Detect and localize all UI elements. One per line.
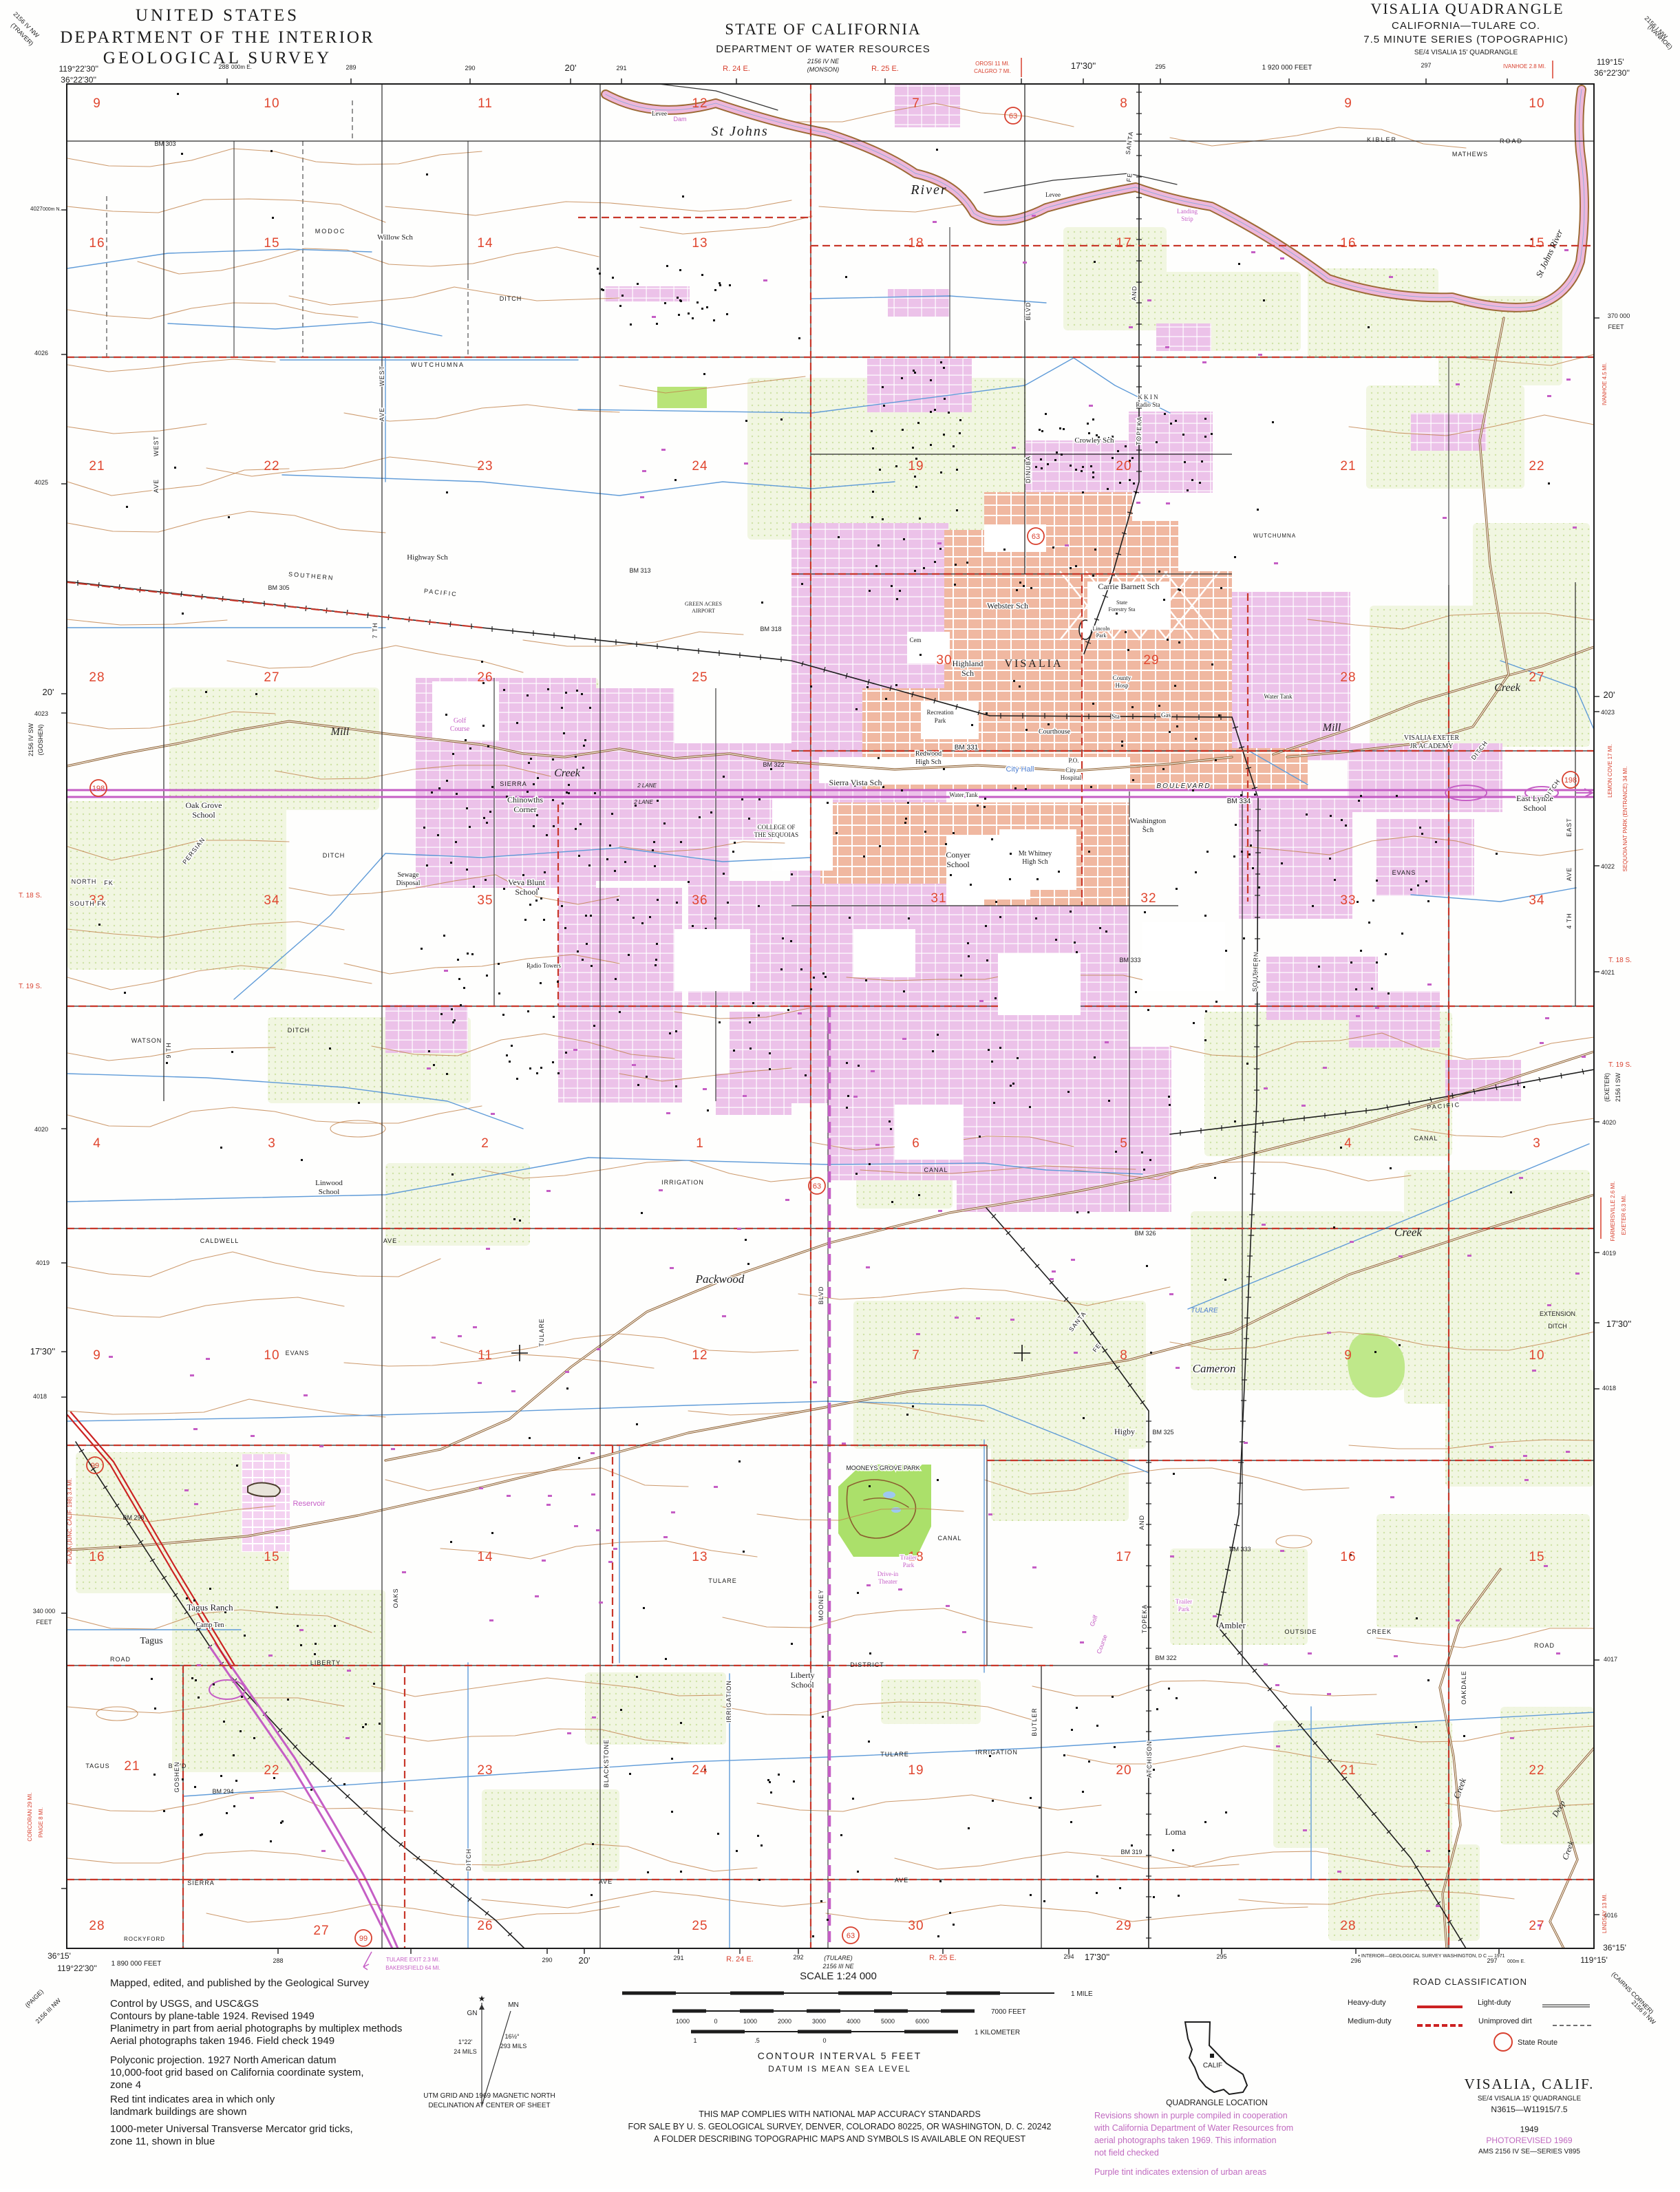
svg-text:Course: Course [450, 725, 470, 733]
svg-text:10: 10 [1529, 96, 1544, 111]
svg-text:BOULEVARD: BOULEVARD [1156, 783, 1211, 790]
svg-text:4019: 4019 [1602, 1250, 1616, 1257]
svg-text:THIS MAP COMPLIES WITH NATIONA: THIS MAP COMPLIES WITH NATIONAL MAP ACCU… [699, 2109, 981, 2119]
svg-text:BM 334: BM 334 [1227, 798, 1251, 805]
svg-text:7 TH: 7 TH [372, 622, 379, 638]
svg-text:AVE: AVE [1566, 867, 1573, 881]
svg-text:6000: 6000 [915, 2018, 929, 2025]
svg-text:DITCH: DITCH [323, 852, 345, 859]
svg-text:GREEN ACRES: GREEN ACRES [685, 601, 722, 607]
svg-text:Park: Park [1096, 632, 1107, 639]
svg-text:FEET: FEET [1608, 323, 1624, 330]
svg-text:Park: Park [935, 717, 946, 724]
svg-text:MOONEY: MOONEY [818, 1589, 825, 1621]
svg-text:19: 19 [908, 1763, 924, 1778]
svg-text:119°15': 119°15' [1597, 57, 1624, 67]
svg-text:Aerial photographs taken 1946.: Aerial photographs taken 1946. Field che… [110, 2035, 334, 2047]
svg-text:9 TH: 9 TH [165, 1042, 172, 1058]
svg-text:26: 26 [477, 670, 493, 685]
svg-text:Mapped, edited, and published: Mapped, edited, and published by the Geo… [110, 1977, 370, 1989]
svg-text:BM 319: BM 319 [1120, 1849, 1142, 1855]
svg-text:7.5 MINUTE SERIES (TOPOGRAPHIC: 7.5 MINUTE SERIES (TOPOGRAPHIC) [1363, 34, 1568, 45]
svg-text:36°15': 36°15' [1603, 1943, 1626, 1952]
svg-text:11: 11 [478, 96, 493, 111]
svg-text:63: 63 [1009, 112, 1017, 120]
svg-text:zone 11, shown in blue: zone 11, shown in blue [110, 2136, 215, 2147]
svg-text:293 MILS: 293 MILS [500, 2043, 527, 2050]
svg-text:(GOSHEN): (GOSHEN) [37, 724, 44, 755]
svg-text:St Johns: St Johns [711, 124, 768, 139]
svg-text:2: 2 [481, 1136, 489, 1151]
svg-text:High Sch: High Sch [1022, 858, 1048, 866]
svg-text:AVE: AVE [379, 407, 385, 421]
svg-text:Sch: Sch [1142, 826, 1154, 834]
svg-text:99: 99 [91, 1462, 99, 1470]
svg-text:Park: Park [1178, 1606, 1190, 1613]
svg-text:Trailer: Trailer [900, 1554, 917, 1561]
svg-text:28: 28 [89, 1919, 105, 1933]
svg-text:BM 313: BM 313 [629, 567, 650, 574]
svg-text:4025: 4025 [34, 479, 48, 486]
svg-text:BM 325: BM 325 [1152, 1429, 1173, 1436]
svg-text:OUTSIDE: OUTSIDE [1284, 1628, 1317, 1635]
svg-text:Drive-in: Drive-in [878, 1571, 899, 1577]
svg-text:295: 295 [1155, 63, 1165, 70]
svg-text:BLVD: BLVD [818, 1286, 825, 1305]
svg-text:Corner: Corner [513, 805, 536, 814]
svg-text:CALIF: CALIF [1203, 2062, 1222, 2069]
svg-text:NORTH: NORTH [72, 878, 97, 885]
svg-text:aerial photographs taken 1969.: aerial photographs taken 1969. This info… [1094, 2136, 1277, 2145]
svg-text:198: 198 [1564, 776, 1577, 785]
svg-text:17'30'': 17'30'' [1085, 1952, 1109, 1962]
svg-text:8: 8 [1120, 96, 1128, 111]
svg-text:SOUTH FK: SOUTH FK [70, 900, 107, 907]
svg-text:PLAZA (JUNC. CALIF. 198) 3.4 M: PLAZA (JUNC. CALIF. 198) 3.4 MI. [67, 1478, 73, 1564]
svg-text:29: 29 [1116, 1919, 1131, 1933]
svg-text:19: 19 [908, 459, 924, 473]
svg-text:20': 20' [579, 1955, 591, 1966]
svg-text:18: 18 [908, 236, 924, 251]
svg-text:PAIGE 8 MI.: PAIGE 8 MI. [38, 1807, 44, 1838]
svg-text:4020: 4020 [34, 1126, 48, 1133]
svg-text:20': 20' [565, 63, 577, 73]
svg-text:Sewage: Sewage [397, 871, 419, 879]
svg-text:High Sch: High Sch [915, 758, 942, 766]
svg-text:SCALE 1:24 000: SCALE 1:24 000 [800, 1970, 877, 1982]
svg-text:TULARE: TULARE [708, 1577, 737, 1584]
svg-text:GOSHEN: GOSHEN [173, 1761, 180, 1792]
svg-text:Higby: Higby [1114, 1427, 1135, 1436]
svg-text:119°22'30'': 119°22'30'' [57, 1964, 97, 1973]
svg-text:16: 16 [1340, 1550, 1356, 1564]
svg-text:36: 36 [692, 893, 708, 908]
svg-text:OAKDALE: OAKDALE [1460, 1670, 1467, 1705]
svg-text:Liberty: Liberty [790, 1670, 814, 1680]
svg-text:OROSI 11 MI.: OROSI 11 MI. [975, 61, 1010, 67]
svg-text:MOONEYS GROVE PARK: MOONEYS GROVE PARK [846, 1465, 919, 1471]
svg-text:0: 0 [822, 2037, 826, 2044]
svg-text:Willow Sch: Willow Sch [377, 233, 413, 242]
svg-text:4017: 4017 [1604, 1656, 1617, 1663]
svg-text:VISALIA: VISALIA [1005, 658, 1063, 670]
svg-text:TOPEKA: TOPEKA [1141, 1604, 1148, 1633]
svg-text:UTM GRID AND 1969 MAGNETIC NOR: UTM GRID AND 1969 MAGNETIC NORTH [423, 2092, 555, 2100]
svg-text:QUADRANGLE LOCATION: QUADRANGLE LOCATION [1166, 2098, 1268, 2107]
svg-text:Contours by plane-table 1924.: Contours by plane-table 1924. Revised 19… [110, 2010, 315, 2022]
svg-text:River: River [910, 182, 947, 198]
svg-text:9: 9 [93, 96, 101, 111]
svg-text:2 LANE: 2 LANE [633, 799, 653, 805]
svg-text:SE/4 VISALIA 15' QUADRANGLE: SE/4 VISALIA 15' QUADRANGLE [1478, 2095, 1582, 2103]
svg-text:1 890 000 FEET: 1 890 000 FEET [111, 1960, 162, 1968]
svg-text:Crowley Sch: Crowley Sch [1074, 436, 1114, 445]
svg-text:BLACKSTONE: BLACKSTONE [603, 1739, 610, 1787]
svg-text:City: City [1065, 767, 1076, 774]
svg-text:21: 21 [1340, 459, 1356, 473]
svg-text:34: 34 [264, 893, 279, 908]
svg-text:Highway Sch: Highway Sch [407, 553, 448, 562]
svg-text:12: 12 [692, 96, 708, 111]
svg-text:A FOLDER DESCRIBING TOPOGRAPHI: A FOLDER DESCRIBING TOPOGRAPHIC MAPS AND… [654, 2134, 1026, 2144]
svg-text:T. 19 S.: T. 19 S. [1608, 1061, 1632, 1069]
svg-text:OAKS: OAKS [392, 1588, 399, 1608]
svg-text:7: 7 [912, 96, 920, 111]
svg-text:15: 15 [1529, 236, 1544, 251]
svg-text:13: 13 [692, 1550, 708, 1564]
svg-text:5: 5 [1120, 1136, 1128, 1151]
svg-text:22: 22 [264, 1763, 279, 1778]
svg-text:Theater: Theater [878, 1578, 897, 1585]
svg-text:7: 7 [912, 1348, 920, 1363]
svg-text:17: 17 [1116, 236, 1131, 251]
svg-text:10: 10 [264, 96, 279, 111]
svg-text:4018: 4018 [1602, 1385, 1616, 1392]
svg-text:10: 10 [1529, 1348, 1544, 1363]
svg-text:2156 IV NE: 2156 IV NE [807, 58, 840, 65]
svg-text:R. 24 E.: R. 24 E. [723, 65, 750, 73]
svg-text:K K I N: K K I N [1138, 394, 1158, 401]
svg-text:63: 63 [847, 1932, 855, 1940]
svg-text:FEET: FEET [36, 1619, 52, 1626]
svg-text:1000: 1000 [743, 2018, 757, 2025]
svg-text:Planimetry in part from aerial: Planimetry in part from aerial photograp… [110, 2023, 402, 2034]
svg-text:Red tint indicates area in whi: Red tint indicates area in which only [110, 2094, 275, 2105]
svg-text:MATHEWS: MATHEWS [1452, 151, 1488, 158]
svg-text:289: 289 [345, 64, 356, 71]
svg-text:School: School [791, 1680, 814, 1690]
svg-text:School: School [946, 860, 970, 869]
svg-text:27: 27 [264, 670, 279, 685]
svg-text:ROAD CLASSIFICATION: ROAD CLASSIFICATION [1413, 1977, 1527, 1987]
svg-text:Veva Blunt: Veva Blunt [508, 877, 545, 887]
svg-text:Linwood: Linwood [315, 1179, 343, 1187]
svg-text:4020: 4020 [1602, 1119, 1616, 1126]
svg-text:29: 29 [1143, 653, 1159, 668]
svg-text:9: 9 [93, 1348, 101, 1363]
svg-text:63: 63 [1032, 533, 1040, 541]
svg-text:BM 318: BM 318 [760, 626, 781, 632]
svg-text:23: 23 [477, 1763, 493, 1778]
svg-text:Control by USGS, and USC&GS: Control by USGS, and USC&GS [110, 1998, 259, 2010]
svg-text:22: 22 [1529, 1763, 1544, 1778]
svg-text:7000 FEET: 7000 FEET [991, 2008, 1026, 2016]
svg-text:Mill: Mill [1322, 722, 1341, 734]
svg-text:30: 30 [908, 1919, 924, 1933]
svg-text:1: 1 [693, 2037, 697, 2044]
svg-text:292: 292 [793, 1954, 803, 1961]
svg-text:9: 9 [1344, 1348, 1352, 1363]
svg-text:33: 33 [1340, 893, 1356, 908]
svg-text:12: 12 [692, 1348, 708, 1363]
svg-text:VISALIA QUADRANGLE: VISALIA QUADRANGLE [1370, 0, 1564, 17]
svg-text:WEST: WEST [379, 365, 385, 386]
svg-text:6: 6 [912, 1136, 920, 1151]
svg-text:Radio Towers: Radio Towers [527, 962, 561, 969]
svg-text:State: State [1116, 599, 1127, 606]
svg-text:32: 32 [1140, 891, 1156, 906]
svg-text:EAST: EAST [1566, 818, 1573, 837]
svg-text:EXTENSION: EXTENSION [1540, 1310, 1575, 1317]
svg-text:LEMON COVE 17 MI.: LEMON COVE 17 MI. [1607, 744, 1613, 798]
svg-text:1000-meter Universal Transvers: 1000-meter Universal Transverse Mercator… [110, 2123, 353, 2135]
svg-text:25: 25 [692, 670, 708, 685]
svg-text:County: County [1113, 674, 1131, 681]
svg-text:17: 17 [1116, 1550, 1131, 1564]
svg-text:FARMERSVILLE 2.6 MI.: FARMERSVILLE 2.6 MI. [1610, 1181, 1616, 1241]
svg-text:Dam: Dam [673, 116, 686, 123]
svg-text:4022: 4022 [1601, 863, 1615, 870]
svg-text:CANAL: CANAL [937, 1535, 961, 1542]
svg-text:VISALIA, CALIF.: VISALIA, CALIF. [1465, 2076, 1595, 2092]
svg-text:27: 27 [313, 1924, 329, 1938]
svg-text:30: 30 [936, 653, 952, 668]
svg-text:Levee: Levee [1045, 191, 1061, 198]
svg-text:17'30'': 17'30'' [1071, 61, 1096, 71]
svg-text:Heavy-duty: Heavy-duty [1348, 1999, 1386, 2007]
svg-text:T. 19 S.: T. 19 S. [19, 983, 42, 990]
svg-text:11: 11 [478, 1348, 493, 1363]
svg-text:21: 21 [124, 1759, 140, 1774]
svg-text:DEPARTMENT OF WATER RESOURCES: DEPARTMENT OF WATER RESOURCES [716, 43, 931, 55]
svg-text:Packwood: Packwood [695, 1273, 745, 1286]
svg-text:Creek: Creek [1494, 682, 1521, 694]
svg-text:Disposal: Disposal [396, 880, 421, 887]
svg-text:SEQUOIA NAT PARK (ENTRANCE) 34: SEQUOIA NAT PARK (ENTRANCE) 34 MI. [1622, 767, 1628, 872]
svg-text:zone 4: zone 4 [110, 2079, 141, 2091]
svg-text:10: 10 [264, 1348, 279, 1363]
svg-text:20': 20' [1604, 690, 1615, 700]
svg-text:CALDWELL: CALDWELL [200, 1237, 240, 1244]
svg-text:BM 333: BM 333 [1229, 1546, 1251, 1553]
svg-text:1°22': 1°22' [458, 2039, 473, 2045]
svg-text:State Route: State Route [1518, 2039, 1557, 2047]
svg-text:DISTRICT: DISTRICT [850, 1661, 884, 1668]
svg-text:.5: .5 [754, 2037, 760, 2044]
svg-text:DITCH: DITCH [1548, 1323, 1567, 1330]
svg-text:CANAL: CANAL [924, 1167, 948, 1173]
svg-text:VISALIA EXETER: VISALIA EXETER [1404, 734, 1460, 742]
svg-text:BUTLER: BUTLER [1031, 1707, 1038, 1736]
svg-text:119°22'30'': 119°22'30'' [59, 64, 99, 74]
svg-text:Hospital: Hospital [1061, 774, 1082, 781]
svg-text:BM 322: BM 322 [1155, 1654, 1176, 1661]
svg-text:AVE: AVE [383, 1237, 397, 1244]
svg-text:36°22'30'': 36°22'30'' [61, 75, 96, 85]
svg-text:EXETER 6.3 MI.: EXETER 6.3 MI. [1621, 1195, 1627, 1235]
svg-text:TULARE EXIT 2.3 MI.: TULARE EXIT 2.3 MI. [386, 1957, 440, 1963]
svg-text:291: 291 [616, 65, 626, 72]
svg-text:FOR SALE BY U. S. GEOLOGICAL S: FOR SALE BY U. S. GEOLOGICAL SURVEY, DEN… [628, 2122, 1051, 2131]
svg-text:31: 31 [931, 891, 946, 906]
svg-text:Unimproved dirt: Unimproved dirt [1478, 2017, 1532, 2025]
svg-text:Redwood: Redwood [915, 750, 942, 758]
svg-text:Recreation: Recreation [927, 709, 954, 716]
svg-text:36°22'30'': 36°22'30'' [1594, 68, 1630, 78]
svg-text:119°15': 119°15' [1580, 1955, 1608, 1965]
svg-text:Mt Whitney: Mt Whitney [1019, 850, 1052, 858]
svg-text:School: School [1523, 803, 1546, 813]
svg-text:8: 8 [1120, 1348, 1128, 1363]
svg-text:340 000: 340 000 [33, 1608, 56, 1615]
svg-text:AIRPORT: AIRPORT [692, 608, 715, 614]
svg-text:Hosp: Hosp [1115, 682, 1129, 689]
svg-text:24 MILS: 24 MILS [454, 2048, 477, 2055]
svg-text:Ambler: Ambler [1218, 1620, 1246, 1630]
svg-text:DITCH: DITCH [500, 295, 522, 302]
svg-text:1: 1 [696, 1136, 704, 1151]
svg-text:99: 99 [359, 1935, 368, 1943]
svg-text:EVANS: EVANS [286, 1350, 310, 1356]
svg-text:WUTCHUMNA: WUTCHUMNA [411, 361, 465, 368]
svg-text:297: 297 [1487, 1957, 1497, 1964]
svg-text:DITCH: DITCH [465, 1849, 472, 1871]
svg-text:Conyer: Conyer [946, 850, 970, 860]
svg-text:0: 0 [714, 2018, 717, 2025]
svg-text:Water Tank: Water Tank [1264, 693, 1293, 700]
svg-text:Highland: Highland [953, 659, 983, 668]
svg-text:★: ★ [478, 1994, 486, 2003]
svg-text:4023: 4023 [34, 710, 48, 717]
svg-text:4018: 4018 [33, 1393, 47, 1400]
svg-text:LINDSAY 13 MI.: LINDSAY 13 MI. [1602, 1893, 1608, 1933]
svg-text:IVANHOE 4.5 MI.: IVANHOE 4.5 MI. [1602, 363, 1608, 405]
svg-text:IRRIGATION: IRRIGATION [725, 1680, 732, 1723]
svg-text:School: School [319, 1188, 340, 1196]
svg-text:Camp Ten: Camp Ten [195, 1621, 224, 1629]
svg-text:DATUM IS MEAN SEA LEVEL: DATUM IS MEAN SEA LEVEL [768, 2064, 911, 2074]
svg-text:Tagus: Tagus [140, 1636, 162, 1646]
svg-text:2156 I NW: 2156 I NW [1653, 28, 1657, 30]
svg-text:288: 288 [273, 1957, 283, 1964]
svg-text:Webster Sch: Webster Sch [987, 601, 1028, 610]
svg-text:198: 198 [92, 785, 105, 793]
svg-text:5000: 5000 [881, 2018, 895, 2025]
svg-text:20': 20' [43, 687, 54, 697]
svg-text:(TULARE): (TULARE) [824, 1955, 853, 1961]
svg-text:Gas: Gas [1161, 712, 1171, 719]
svg-text:Park: Park [903, 1562, 915, 1568]
svg-text:BM 331: BM 331 [955, 744, 979, 752]
svg-text:COLLEGE OF: COLLEGE OF [758, 824, 796, 831]
svg-text:4023: 4023 [1601, 709, 1615, 716]
svg-text:27: 27 [1529, 670, 1544, 685]
svg-text:Forestry Sta: Forestry Sta [1109, 606, 1136, 613]
svg-text:Radio Sta: Radio Sta [1136, 401, 1160, 408]
svg-text:Cameron: Cameron [1193, 1362, 1236, 1375]
svg-text:24: 24 [692, 1763, 708, 1778]
svg-text:BM 333: BM 333 [1119, 957, 1140, 964]
svg-text:2156 III NE: 2156 III NE [822, 1963, 854, 1970]
svg-text:BAKERSFIELD 64 MI.: BAKERSFIELD 64 MI. [385, 1965, 440, 1971]
svg-text:AND: AND [1131, 286, 1138, 301]
svg-text:2000: 2000 [778, 2018, 791, 2025]
svg-text:15: 15 [264, 236, 279, 251]
svg-text:16½°: 16½° [504, 2033, 520, 2040]
svg-text:36°15': 36°15' [47, 1951, 71, 1961]
svg-text:DECLINATION AT CENTER OF SHEET: DECLINATION AT CENTER OF SHEET [428, 2102, 550, 2109]
svg-text:9: 9 [1344, 96, 1352, 111]
svg-text:CREEK: CREEK [1367, 1628, 1392, 1635]
svg-text:BM 303: BM 303 [154, 140, 176, 147]
svg-text:Chinowths: Chinowths [507, 795, 543, 805]
svg-text:1 MILE: 1 MILE [1071, 1990, 1093, 1998]
svg-text:16: 16 [89, 236, 105, 251]
svg-text:SOUTHERN: SOUTHERN [1251, 951, 1259, 992]
svg-text:295: 295 [1216, 1953, 1226, 1960]
svg-text:DEPARTMENT OF THE INTERIOR: DEPARTMENT OF THE INTERIOR [60, 28, 374, 47]
svg-text:Washington: Washington [1130, 817, 1167, 825]
svg-text:TULARE: TULARE [880, 1751, 909, 1758]
svg-text:TOPEKA: TOPEKA [1135, 416, 1142, 446]
svg-text:BM 326: BM 326 [1134, 1230, 1156, 1237]
svg-text:Revisions shown in purple comp: Revisions shown in purple compiled in co… [1094, 2111, 1288, 2120]
svg-text:CORCORAN 29 MI.: CORCORAN 29 MI. [27, 1792, 33, 1841]
svg-text:17'30'': 17'30'' [30, 1346, 55, 1356]
svg-text:FK: FK [104, 880, 114, 886]
svg-text:290: 290 [542, 1957, 552, 1964]
svg-text:290: 290 [465, 65, 475, 72]
svg-text:CALGRO 7 MI.: CALGRO 7 MI. [974, 68, 1011, 74]
svg-text:WATSON: WATSON [131, 1037, 162, 1044]
svg-text:Purple tint indicates extensio: Purple tint indicates extension of urban… [1094, 2167, 1266, 2177]
svg-text:3: 3 [268, 1136, 276, 1151]
svg-text:28: 28 [89, 670, 105, 685]
svg-text:2156 I SW: 2156 I SW [1615, 1072, 1621, 1102]
svg-text:BM 305: BM 305 [268, 584, 289, 591]
svg-text:3: 3 [1533, 1136, 1541, 1151]
svg-text:AND: AND [1138, 1515, 1145, 1530]
svg-text:370 000: 370 000 [1608, 312, 1630, 319]
svg-text:KIBLER: KIBLER [1367, 136, 1397, 143]
svg-text:4 TH: 4 TH [1566, 913, 1573, 928]
svg-text:SIERRA: SIERRA [187, 1880, 215, 1886]
svg-text:4000: 4000 [847, 2018, 860, 2025]
svg-text:291: 291 [673, 1955, 683, 1961]
svg-text:AMS 2156 IV SE—SERIES V895: AMS 2156 IV SE—SERIES V895 [1478, 2148, 1580, 2156]
svg-text:DITCH: DITCH [288, 1027, 310, 1034]
svg-text:2156 IV SW: 2156 IV SW [28, 723, 34, 756]
svg-text:BLVD: BLVD [1025, 302, 1032, 321]
svg-text:4: 4 [1344, 1136, 1352, 1151]
svg-text:UNITED STATES: UNITED STATES [136, 6, 299, 25]
svg-text:Light-duty: Light-duty [1478, 1999, 1511, 2007]
svg-text:22: 22 [1529, 459, 1544, 473]
svg-text:20: 20 [1116, 1763, 1131, 1778]
svg-text:10,000-foot grid based on Cali: 10,000-foot grid based on California coo… [110, 2067, 364, 2078]
svg-text:4026: 4026 [34, 350, 48, 357]
svg-text:20: 20 [1116, 459, 1131, 473]
